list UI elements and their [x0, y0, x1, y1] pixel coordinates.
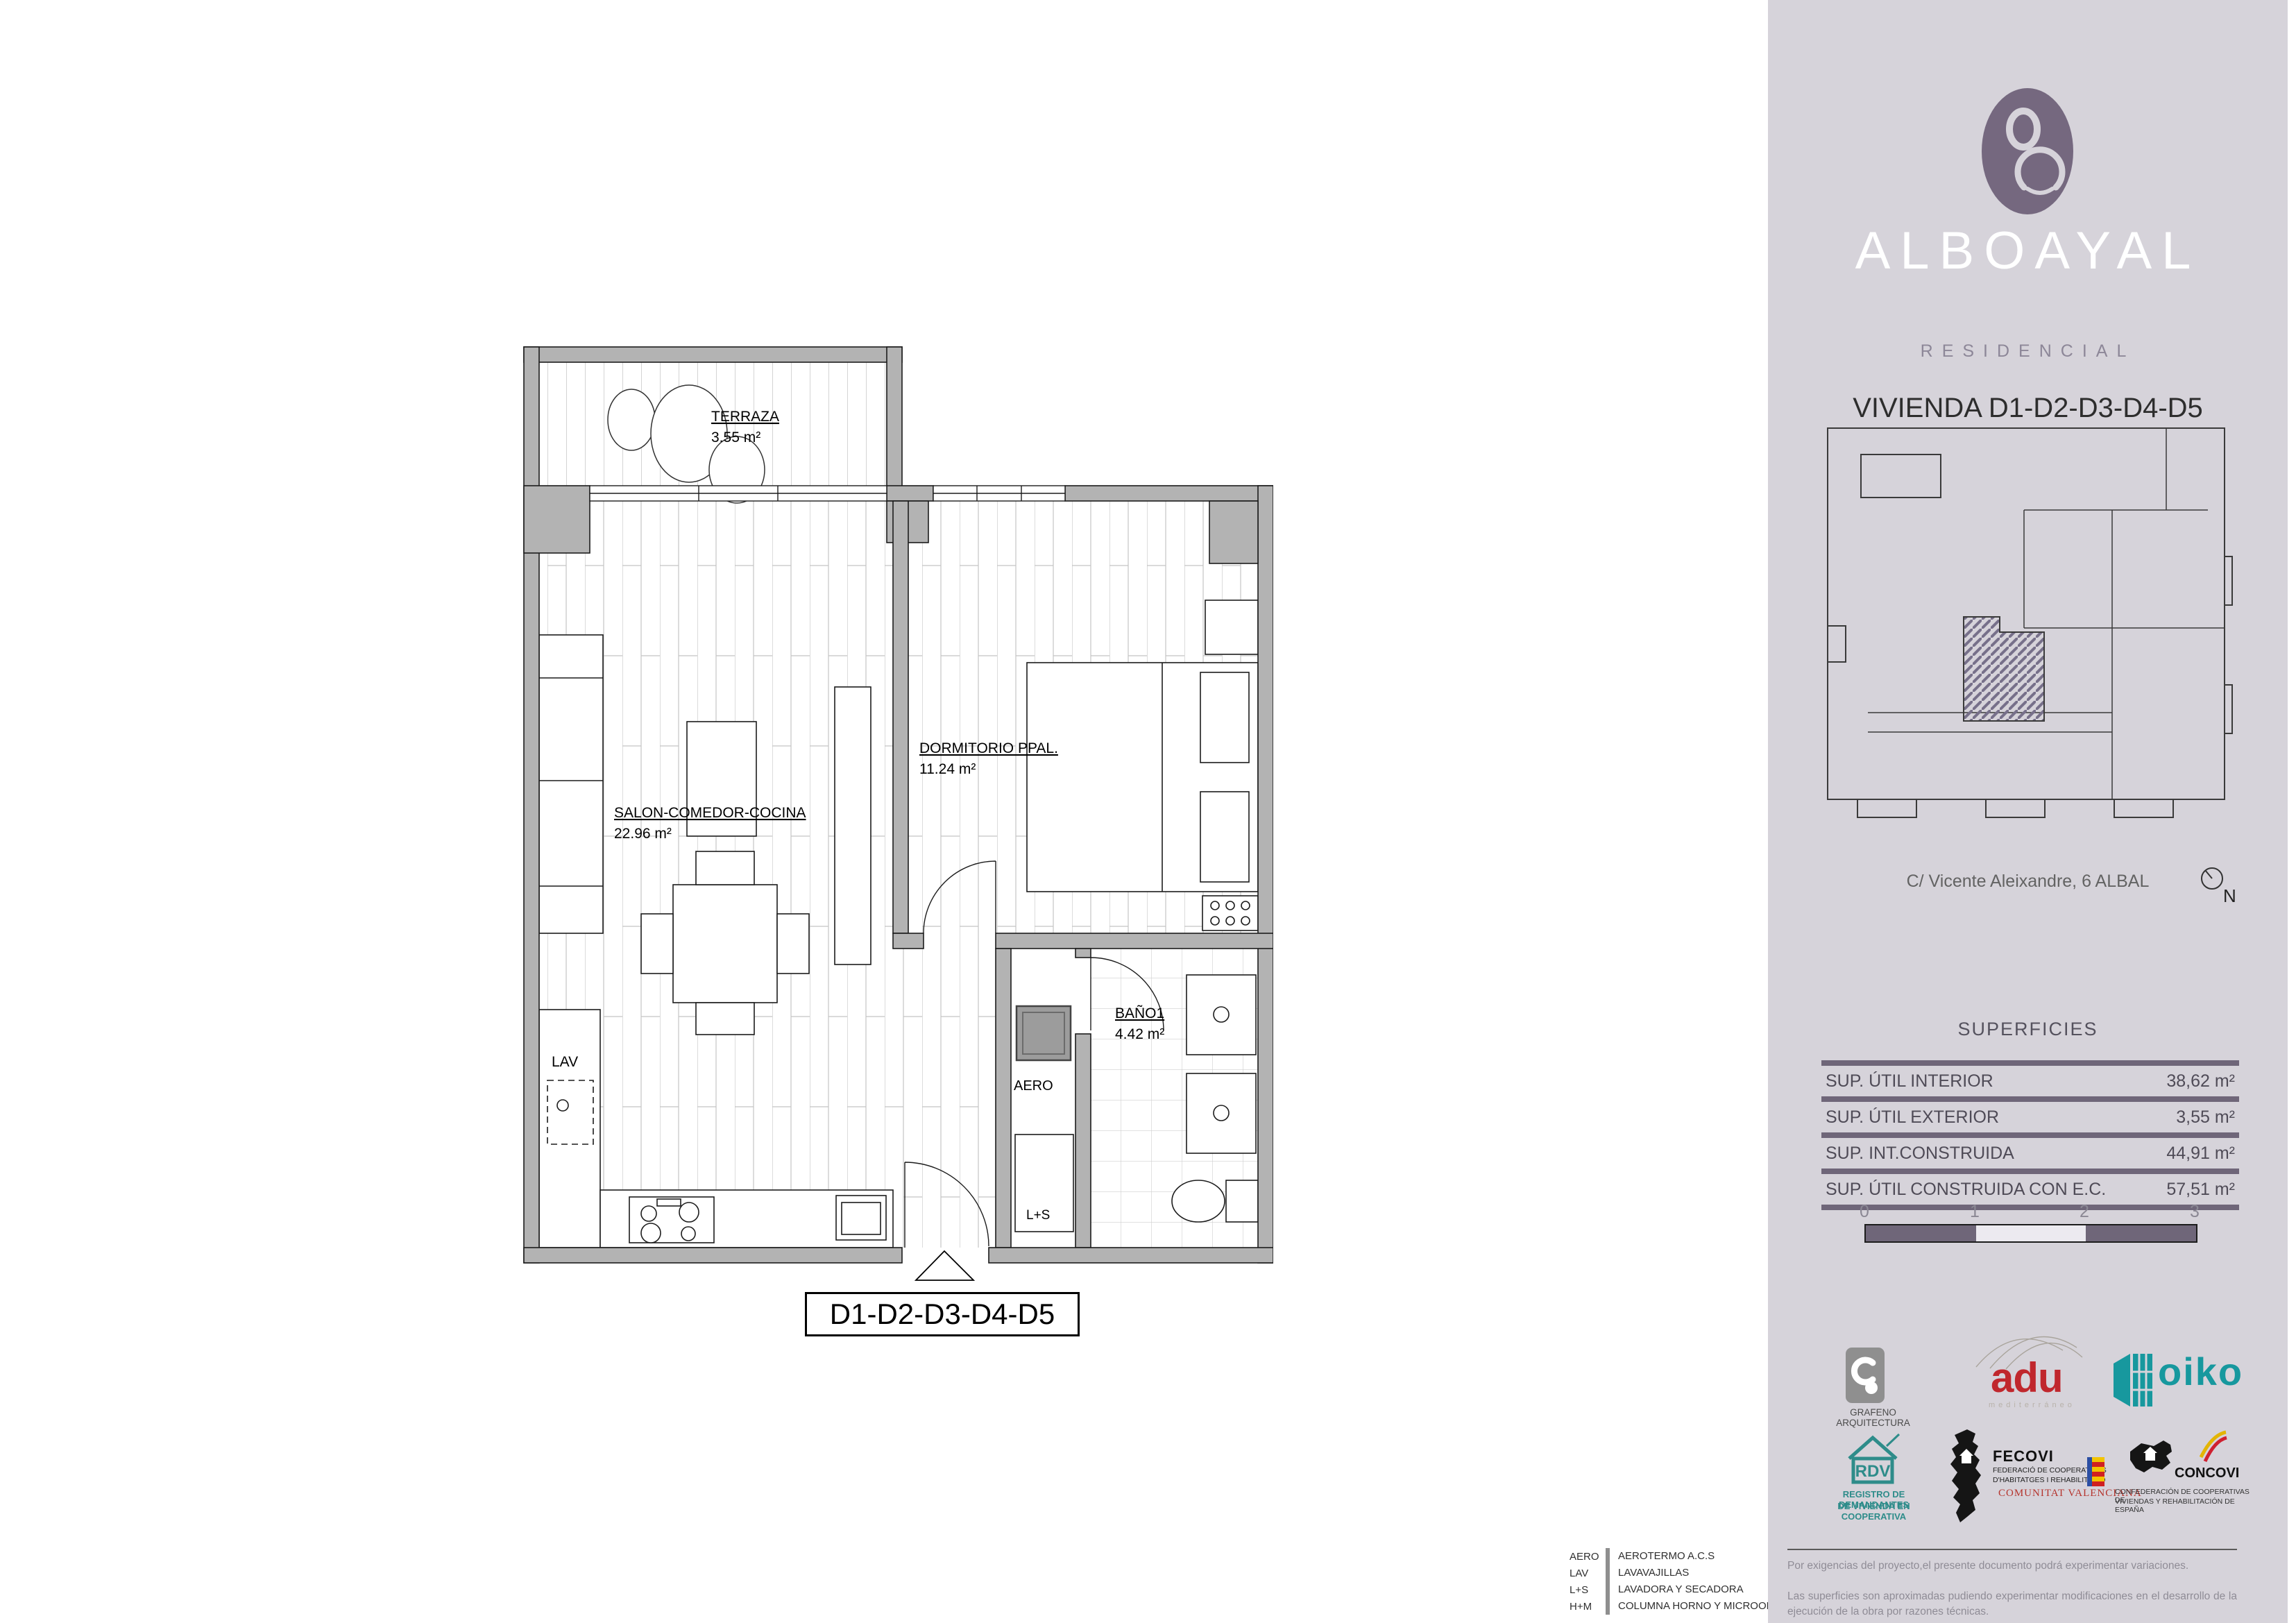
- legend-abbr: H+M: [1570, 1601, 1606, 1613]
- adu-logo: adu: [1991, 1359, 2063, 1397]
- entrance-marker: [916, 1251, 973, 1280]
- row-label: SUP. INT.CONSTRUIDA: [1826, 1144, 2014, 1164]
- scale-numbers: 0 1 2 3: [1864, 1202, 2195, 1221]
- salon-area: 22.96 m²: [614, 826, 672, 842]
- row-value: 57,51 m²: [2166, 1180, 2235, 1200]
- scale-tick: 0: [1860, 1202, 1869, 1222]
- divider: [1787, 1549, 2237, 1550]
- grafeno-logo-icon: [1846, 1348, 1885, 1403]
- pillow: [1200, 672, 1249, 763]
- rdv-abbr: RDV: [1855, 1462, 1891, 1481]
- grafeno-caption: GRAFENO ARQUITECTURA: [1812, 1407, 1934, 1428]
- chair: [696, 1003, 754, 1035]
- sidebar: ALBOAYAL RESIDENCIAL VIVIENDA D1-D2-D3-D…: [1768, 0, 2288, 1623]
- brand-logo-icon: [1981, 87, 2074, 215]
- plan-title: D1-D2-D3-D4-D5: [805, 1292, 1080, 1336]
- row-label: SUP. ÚTIL EXTERIOR: [1826, 1107, 1999, 1128]
- concovi-name: CONCOVI: [2175, 1465, 2239, 1481]
- north-compass-icon: N: [2197, 865, 2243, 909]
- aero-unit: [1017, 1006, 1071, 1060]
- terraza-label: TERRAZA: [711, 409, 779, 425]
- pillow: [1200, 792, 1249, 882]
- concovi-caption-2: VIVIENDAS Y REHABILITACIÓN DE ESPAÑA: [2115, 1497, 2261, 1514]
- row-label: SUP. ÚTIL INTERIOR: [1826, 1071, 1993, 1091]
- dormitorio-area: 11.24 m²: [919, 761, 976, 777]
- sofa: [539, 635, 603, 933]
- row-value: 3,55 m²: [2176, 1107, 2235, 1128]
- adu-sub: mediterráneo: [1989, 1401, 2075, 1409]
- scale-tick: 1: [1970, 1202, 1980, 1222]
- legend-abbr: LAV: [1570, 1567, 1606, 1579]
- terraza-area: 3.55 m²: [711, 430, 760, 445]
- disclaimer-1: Por exigencias del proyecto,el presente …: [1787, 1558, 2237, 1574]
- scale-tick: 2: [2080, 1202, 2089, 1222]
- rdv-logo-icon: RDV: [1844, 1432, 1902, 1486]
- nightstand: [1205, 600, 1258, 654]
- windows: [590, 486, 1065, 501]
- dormitorio-label: DORMITORIO PPAL.: [919, 740, 1058, 756]
- brochure-page: TERRAZA 3.55 m² SALON-COMEDOR-COCINA 22.…: [0, 0, 2296, 1623]
- concovi-swoosh-icon: [2198, 1429, 2227, 1463]
- legend-desc: AEROTERMO A.C.S: [1606, 1548, 1715, 1565]
- row-value: 44,91 m²: [2166, 1144, 2235, 1164]
- lav-label: LAV: [552, 1054, 578, 1070]
- fecovi-name: FECOVI: [1993, 1447, 2054, 1465]
- floor-plan: TERRAZA 3.55 m² SALON-COMEDOR-COCINA 22.…: [510, 337, 1273, 1294]
- unit-highlight: [1964, 617, 2044, 721]
- dining-table: [673, 885, 777, 1003]
- appliance-legend: AERO AEROTERMO A.C.S LAV LAVAVAJILLAS L+…: [1570, 1548, 1795, 1615]
- legend-row: L+S LAVADORA Y SECADORA: [1570, 1581, 1795, 1598]
- oiko-logo: oiko: [2158, 1349, 2243, 1394]
- bano-area: 4.42 m²: [1115, 1026, 1164, 1042]
- brand-name: ALBOAYAL: [1768, 221, 2288, 281]
- ls-label: L+S: [1026, 1208, 1050, 1223]
- superficies-table: SUP. ÚTIL INTERIOR 38,62 m² SUP. ÚTIL EX…: [1821, 1060, 2239, 1210]
- toilet: [1172, 1180, 1225, 1222]
- legend-desc: LAVAVAJILLAS: [1606, 1565, 1689, 1581]
- legend-abbr: L+S: [1570, 1584, 1606, 1596]
- concovi-map-icon: [2127, 1434, 2173, 1482]
- legend-row: LAV LAVAVAJILLAS: [1570, 1565, 1795, 1581]
- legend-desc: LAVADORA Y SECADORA: [1606, 1581, 1744, 1598]
- brand-tagline: RESIDENCIAL: [1768, 341, 2288, 362]
- table-row: SUP. INT.CONSTRUIDA 44,91 m²: [1821, 1132, 2239, 1169]
- table-row: SUP. ÚTIL INTERIOR 38,62 m²: [1821, 1060, 2239, 1096]
- chair: [777, 914, 809, 974]
- scale-bar: [1864, 1224, 2197, 1243]
- sideboard: [835, 687, 871, 965]
- chair: [641, 914, 673, 974]
- row-value: 38,62 m²: [2166, 1071, 2235, 1091]
- rdv-caption-2: DE VIVIENDA EN COOPERATIVA: [1810, 1501, 1938, 1522]
- legend-row: AERO AEROTERMO A.C.S: [1570, 1548, 1795, 1565]
- superficies-title: SUPERFICIES: [1768, 1019, 2288, 1040]
- dishwasher: [547, 1080, 593, 1144]
- valencian-flag-icon: [2087, 1457, 2104, 1486]
- unit-title: VIVIENDA D1-D2-D3-D4-D5: [1768, 393, 2288, 424]
- bano-label: BAÑO1: [1115, 1005, 1164, 1021]
- oiko-logo-icon: [2114, 1352, 2152, 1408]
- north-label: N: [2223, 885, 2236, 906]
- disclaimer-2: Las superficies son aproximadas pudiendo…: [1787, 1589, 2237, 1620]
- chair: [696, 851, 754, 885]
- legend-desc: COLUMNA HORNO Y MICROONDAS: [1606, 1598, 1795, 1615]
- salon-label: SALON-COMEDOR-COCINA: [614, 805, 806, 821]
- aero-label: AERO: [1014, 1078, 1053, 1094]
- fecovi-map-icon: [1946, 1428, 1989, 1525]
- legend-abbr: AERO: [1570, 1551, 1606, 1563]
- legend-row: H+M COLUMNA HORNO Y MICROONDAS: [1570, 1598, 1795, 1615]
- site-key-plan: [1819, 421, 2233, 838]
- scale-tick: 3: [2190, 1202, 2200, 1222]
- table-row: SUP. ÚTIL EXTERIOR 3,55 m²: [1821, 1096, 2239, 1132]
- row-label: SUP. ÚTIL CONSTRUIDA CON E.C.: [1826, 1180, 2106, 1200]
